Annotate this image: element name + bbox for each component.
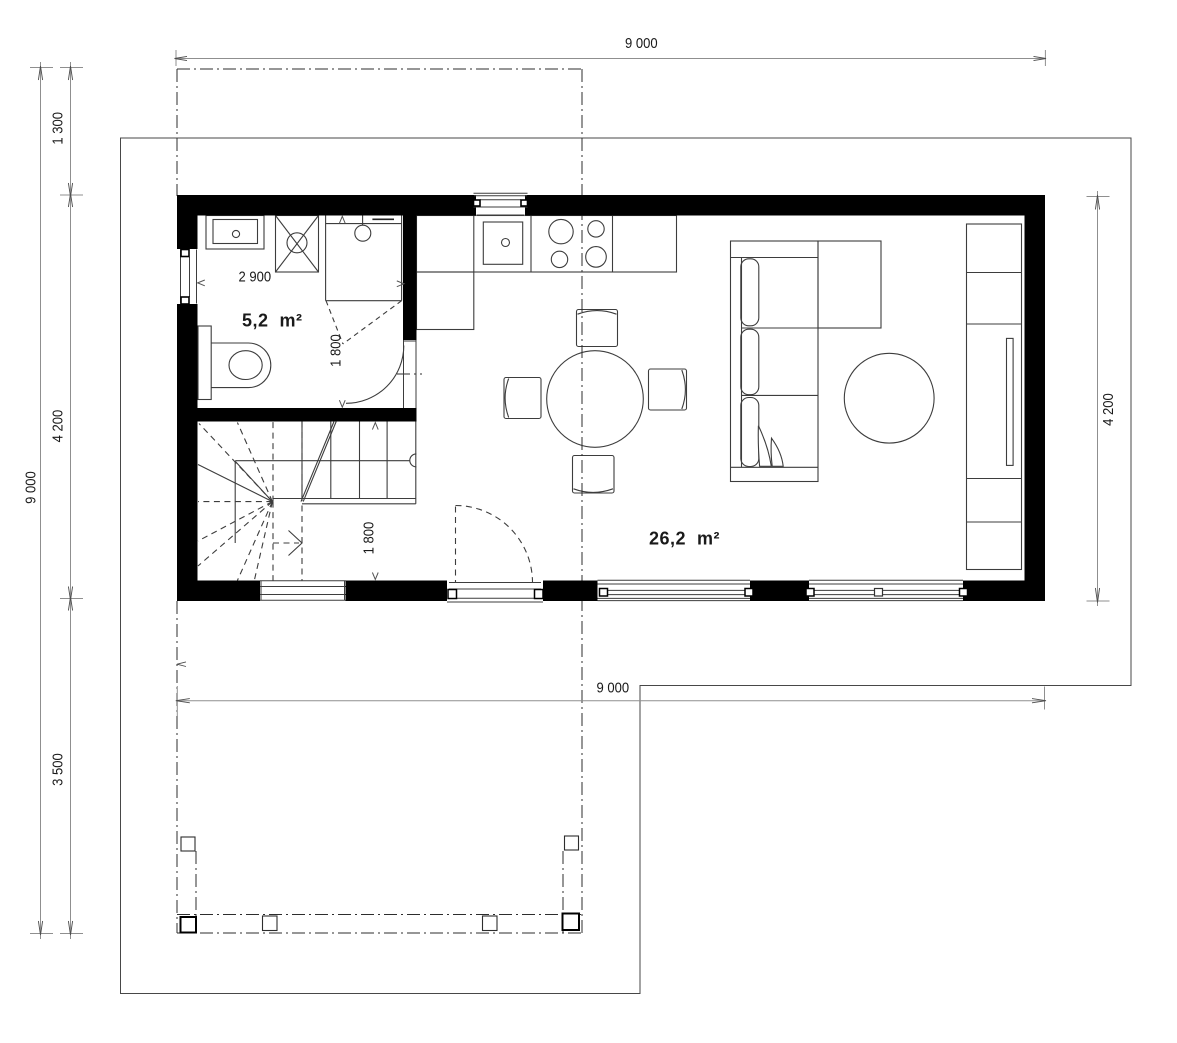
svg-text:9 000: 9 000 [22,471,39,504]
svg-text:1 300: 1 300 [48,112,65,145]
svg-text:4 200: 4 200 [1099,393,1116,426]
svg-text:1 800: 1 800 [359,522,376,555]
svg-text:4 200: 4 200 [48,410,65,443]
svg-text:26,2 m²: 26,2 m² [649,529,720,549]
svg-text:2 900: 2 900 [239,268,272,285]
svg-text:3 500: 3 500 [48,753,65,786]
svg-text:9 000: 9 000 [597,679,630,696]
svg-text:1 800: 1 800 [327,334,344,367]
svg-text:5,2 m²: 5,2 m² [242,311,303,331]
svg-text:9 000: 9 000 [625,34,658,51]
